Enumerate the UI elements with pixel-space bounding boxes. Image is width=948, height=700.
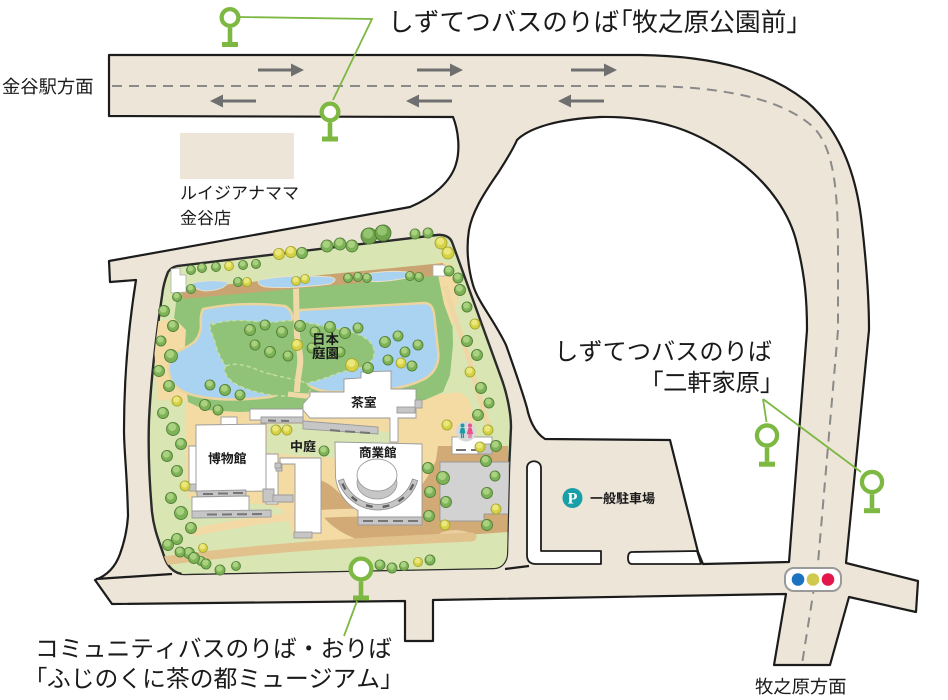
svg-text:P: P	[568, 491, 578, 508]
